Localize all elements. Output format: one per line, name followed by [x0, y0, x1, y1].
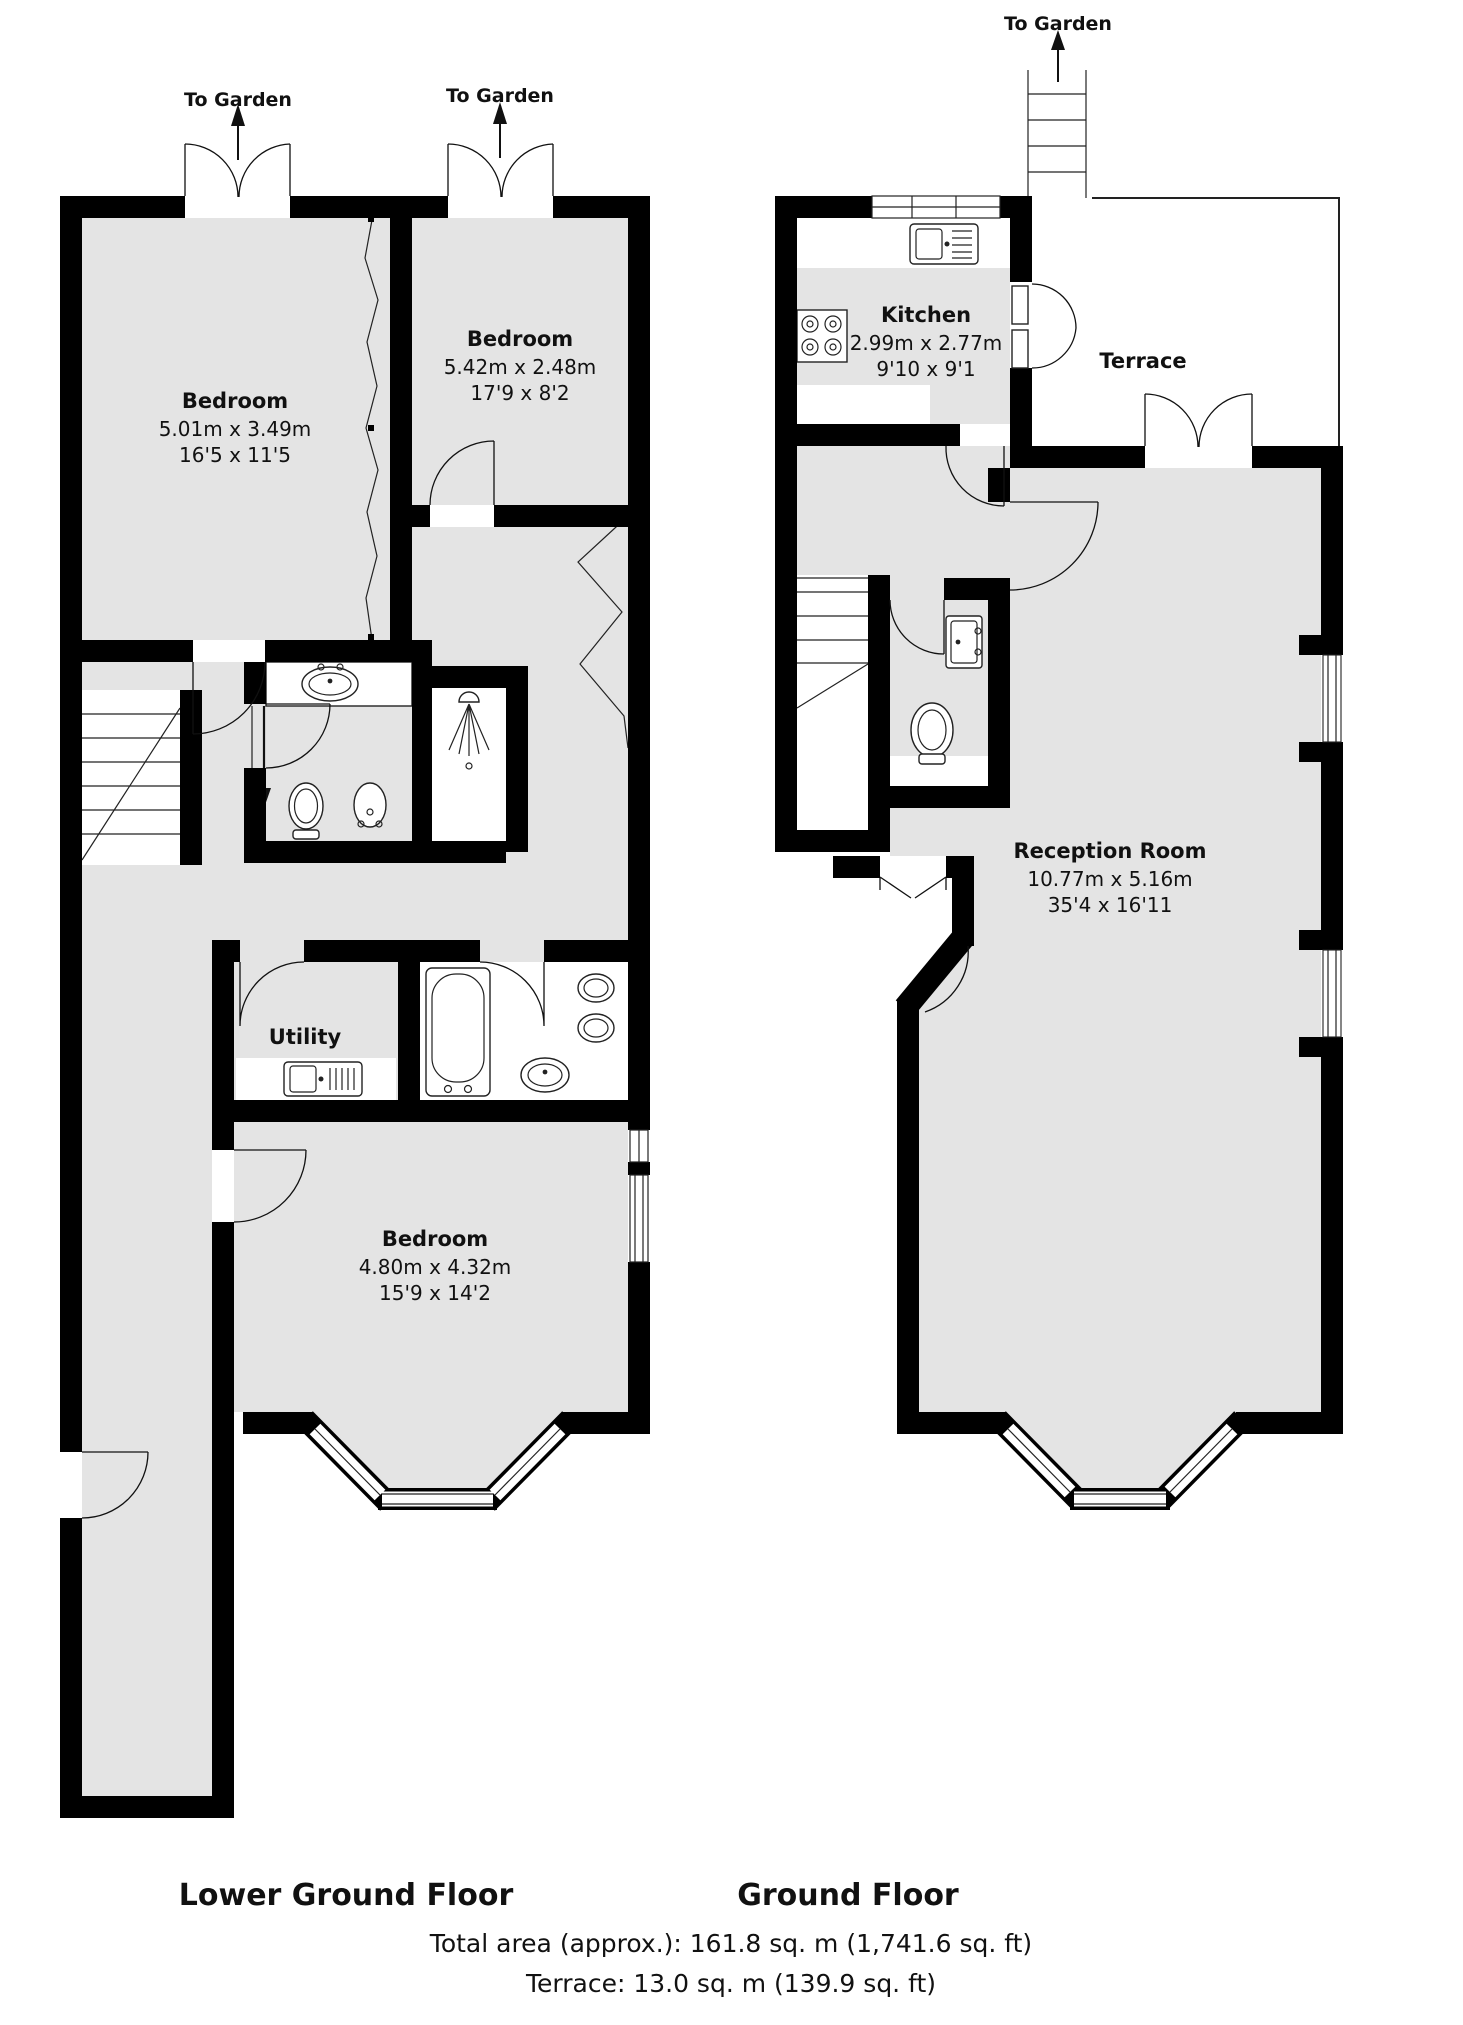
- room-name: Reception Room: [1014, 839, 1207, 863]
- stairwell: [797, 575, 868, 830]
- french-door-leaf: [1012, 286, 1028, 324]
- lower-ground-floor-title: Lower Ground Floor: [179, 1878, 514, 1913]
- to-garden-label-1: To Garden: [184, 89, 292, 160]
- lower-ground-floor-plan: To Garden To Garden Bedroom 5.01m x 3.49…: [60, 85, 650, 1818]
- room-name: Kitchen: [881, 303, 971, 327]
- room-metric: 2.99m x 2.77m: [850, 331, 1003, 355]
- kitchen-sink-icon: [910, 224, 978, 264]
- floorplan-page: To Garden To Garden Bedroom 5.01m x 3.49…: [0, 0, 1463, 2025]
- bidet-icon: [354, 783, 386, 827]
- room-imperial: 16'5 x 11'5: [179, 443, 291, 467]
- terrace-label: Terrace: [1099, 349, 1186, 373]
- basin-icon: [302, 667, 358, 701]
- stairs-area: [82, 690, 180, 865]
- room-imperial: 17'9 x 8'2: [470, 381, 569, 405]
- terrace-area-text: Terrace: 13.0 sq. m (139.9 sq. ft): [525, 1969, 936, 1998]
- bedroom-3-window-icon: [630, 1130, 648, 1262]
- room-metric: 5.42m x 2.48m: [444, 355, 597, 379]
- kitchen-floor-notch: [797, 385, 930, 424]
- room-metric: 5.01m x 3.49m: [159, 417, 312, 441]
- corridor-floor: [82, 962, 212, 1796]
- total-area-text: Total area (approx.): 161.8 sq. m (1,741…: [429, 1929, 1032, 1958]
- front-door-icon: [880, 877, 946, 898]
- room-name: Bedroom: [382, 1227, 488, 1251]
- room-imperial: 9'10 x 9'1: [876, 357, 975, 381]
- wc-sink-icon: [946, 616, 982, 668]
- to-garden-label-3: To Garden: [1004, 13, 1112, 82]
- room-imperial: 35'4 x 16'11: [1048, 893, 1173, 917]
- wc-door-gap: [890, 578, 944, 600]
- hall-floor: [797, 446, 1010, 578]
- toilet-icon: [289, 783, 323, 839]
- room-metric: 4.80m x 4.32m: [359, 1255, 512, 1279]
- ground-floor-title: Ground Floor: [737, 1878, 959, 1913]
- floorplan-canvas: To Garden To Garden Bedroom 5.01m x 3.49…: [0, 0, 1463, 2025]
- kitchen-window-icon: [872, 196, 1000, 218]
- pedestal-basin-icon: [521, 1058, 569, 1092]
- room-metric: 10.77m x 5.16m: [1027, 867, 1192, 891]
- room-name: Bedroom: [467, 327, 573, 351]
- room-imperial: 15'9 x 14'2: [379, 1281, 491, 1305]
- partition-dot: [368, 634, 374, 640]
- garden-stairs-icon: [1028, 70, 1086, 198]
- bathtub-icon: [426, 968, 490, 1096]
- hob-icon: [797, 310, 847, 362]
- room-name: Bedroom: [182, 389, 288, 413]
- french-door-leaf: [1012, 330, 1028, 368]
- ground-floor-plan: To Garden Kitchen 2.99m x 2.77m 9'10 x 9…: [775, 13, 1343, 1504]
- utility-sink-icon: [284, 1062, 362, 1096]
- utility-label: Utility: [269, 1025, 342, 1049]
- partition-dot: [368, 425, 374, 431]
- hall-right-floor: [412, 527, 628, 662]
